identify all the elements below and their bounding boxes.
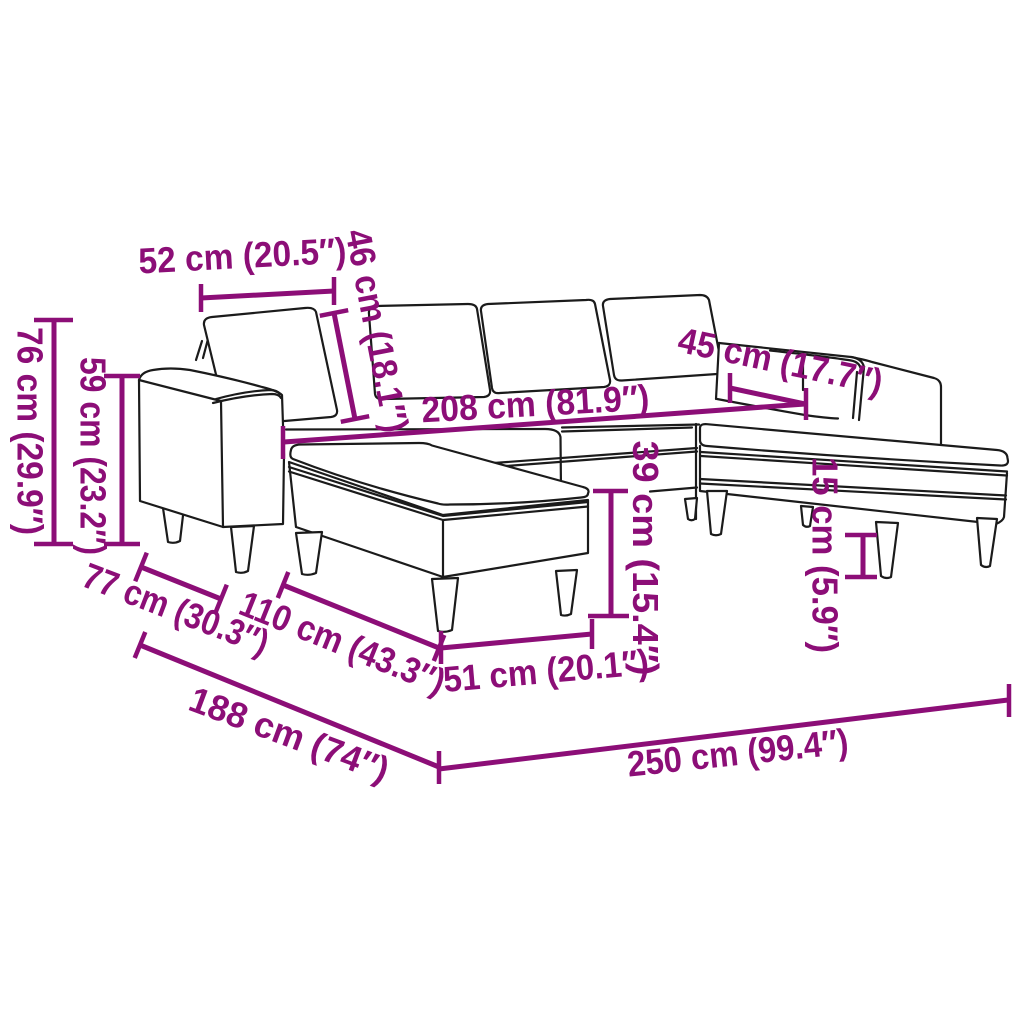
svg-text:15 cm (5.9″): 15 cm (5.9″) <box>805 457 846 653</box>
svg-text:39 cm (15.4″): 39 cm (15.4″) <box>625 441 666 676</box>
svg-text:76 cm (29.9″): 76 cm (29.9″) <box>10 327 51 535</box>
svg-text:59 cm (23.2″): 59 cm (23.2″) <box>73 357 114 555</box>
